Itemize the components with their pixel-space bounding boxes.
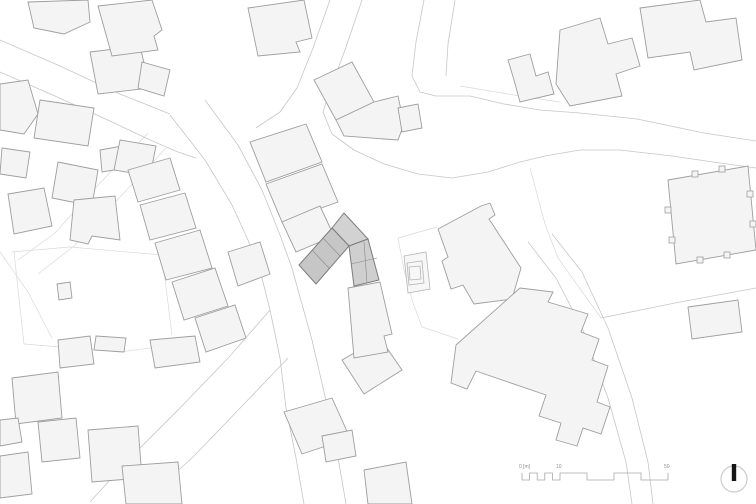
parcel-line [0, 252, 52, 338]
church-buttress [697, 257, 703, 263]
building-footprint [34, 100, 94, 146]
building-footprint [150, 336, 200, 368]
building-footprint [122, 462, 182, 504]
building-footprint [668, 166, 756, 264]
site-plan: 0 [m] 10 50 [0, 0, 756, 504]
courtyard-rings [404, 252, 430, 293]
building-footprint [94, 336, 126, 352]
building-footprint [451, 288, 610, 446]
building-footprint [12, 372, 62, 424]
building-footprint [98, 0, 162, 56]
scale-label-zero: 0 [m] [519, 464, 531, 470]
parcel-line [398, 227, 437, 238]
building-footprint [38, 418, 80, 462]
road-edge [270, 310, 304, 504]
parcel-line [14, 252, 24, 344]
building-footprint [322, 430, 356, 462]
building-footprint [70, 196, 120, 244]
courtyard-ring [409, 266, 421, 280]
church-buttress [719, 166, 725, 172]
road-edge [446, 0, 455, 76]
building-footprint [228, 242, 270, 286]
road-edge [298, 290, 346, 504]
north-arrow-needle [732, 464, 736, 481]
building-footprint [556, 18, 640, 106]
building-footprint [28, 0, 90, 34]
building-footprint [0, 452, 32, 498]
church-buttress [665, 207, 671, 213]
building-footprint [348, 282, 392, 358]
scale-label-fifty: 50 [664, 464, 670, 470]
building-footprint [0, 148, 30, 178]
building-footprint [140, 193, 196, 240]
building-footprint [57, 282, 72, 300]
building-footprint [58, 336, 94, 368]
building-footprint [364, 462, 412, 504]
church-buttress [724, 252, 730, 258]
scale-label-ten: 10 [556, 464, 562, 470]
building-footprint [248, 0, 312, 56]
road-edge [412, 0, 436, 96]
church-buttress [692, 171, 698, 177]
church-buttress [750, 221, 756, 227]
road-edge [436, 96, 756, 141]
church-buttress [669, 237, 675, 243]
building-footprint [640, 0, 742, 70]
scale-bar: 0 [m] 10 50 [519, 464, 670, 480]
building-footprint [8, 188, 52, 234]
north-arrow [721, 464, 747, 492]
building-footprint [688, 300, 742, 339]
building-footprint [438, 203, 521, 304]
church-buttress [747, 191, 753, 197]
building-footprints [0, 0, 756, 504]
building-footprint [138, 62, 170, 96]
building-footprint [0, 418, 22, 446]
scale-bar-path [522, 473, 668, 480]
building-footprint [0, 80, 38, 134]
building-footprint [398, 104, 422, 132]
site-plan-canvas: 0 [m] 10 50 [0, 0, 756, 504]
